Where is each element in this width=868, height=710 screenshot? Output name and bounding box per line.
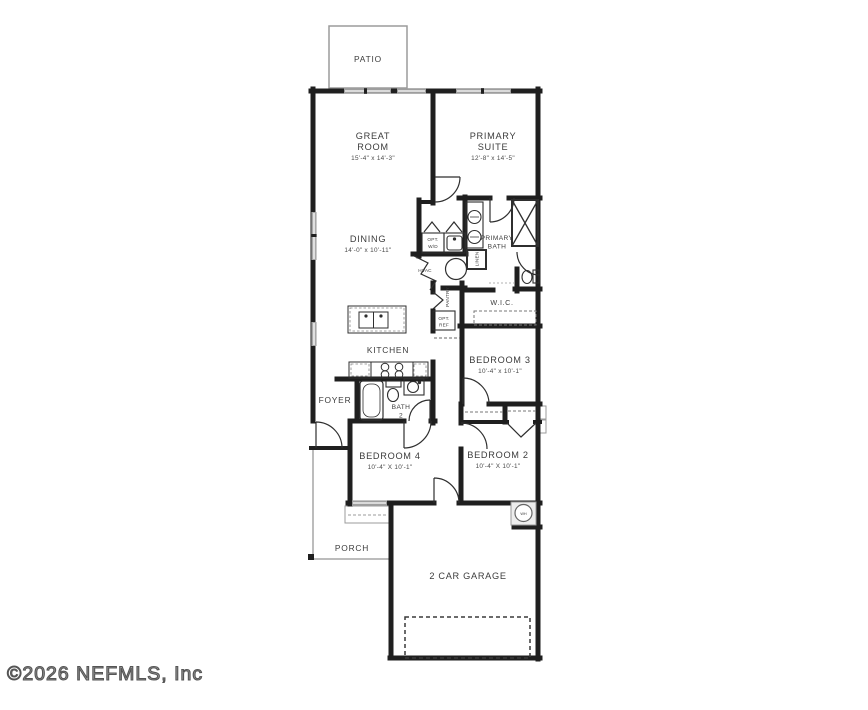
great-room-top-window [397, 88, 426, 94]
laundry-bifold-doors [424, 222, 462, 232]
dashed-lines [405, 283, 537, 658]
kitchen-label: KITCHEN [367, 345, 409, 355]
great-room-label-2: ROOM [357, 142, 388, 152]
garage-entry-door-arc [434, 478, 459, 503]
opt-ref-label-1: OPT. [438, 316, 449, 321]
garage-label: 2 CAR GARAGE [429, 571, 506, 581]
patio-slider-window [344, 88, 391, 94]
bedroom2-dims: 10'-4" X 10'-1" [476, 463, 521, 470]
shower [512, 200, 538, 246]
floor-plan-drawing: PATIO GREAT ROOM 15'-4" x 14'-3" PRIMARY… [0, 0, 868, 710]
hvac-angled-door [414, 256, 436, 290]
bedroom4-label: BEDROOM 4 [359, 451, 420, 461]
hvac-unit [446, 259, 467, 280]
primary-suite-dims: 12'-8" x 14'-5" [471, 155, 515, 162]
primary-suite-door-arc [435, 177, 460, 202]
primary-suite-label-2: SUITE [478, 142, 509, 152]
primary-suite-label-1: PRIMARY [470, 131, 517, 141]
great-room-dims: 15'-4" x 14'-3" [351, 155, 395, 162]
bedroom2-door-arc [461, 423, 487, 449]
left-wall-window-single [311, 322, 316, 346]
stove [371, 362, 413, 378]
bedroom4-door-arc [404, 421, 431, 448]
porch-corner-post [308, 554, 314, 560]
linen-label: LINEN [475, 252, 480, 267]
bedroom4-window-bay [345, 506, 390, 523]
bathtub [360, 381, 383, 420]
hvac-label: HVAC [418, 268, 432, 273]
primary-bath-label-2: BATH [488, 244, 507, 251]
patio-label: PATIO [354, 54, 382, 64]
porch-label: PORCH [335, 543, 369, 553]
floor-plan-image: PATIO GREAT ROOM 15'-4" x 14'-3" PRIMARY… [0, 0, 868, 710]
washer-dryer [422, 233, 444, 253]
bedroom4-front-window [352, 500, 387, 506]
primary-suite-top-window [456, 88, 511, 94]
opt-ref-label-2: REF [439, 323, 449, 328]
utility-sink [444, 233, 465, 253]
water-heater-label: WH [520, 512, 527, 516]
wic-closet-dashed [474, 311, 536, 325]
wic-label: W.I.C. [490, 298, 513, 307]
exterior-window-tabs [540, 406, 546, 433]
front-door-arc [316, 422, 342, 448]
bath2-toilet [386, 381, 401, 402]
copyright-watermark: ©2026 NEFMLS, Inc [7, 663, 203, 686]
garage-door-dashed [405, 617, 530, 658]
primary-bath-door-arc [490, 198, 514, 222]
bedroom3-door-arc [463, 378, 489, 404]
bedroom4-dims: 10'-4" X 10'-1" [368, 464, 413, 471]
left-wall-window-double [311, 212, 316, 260]
bath2-label-1: BATH [392, 404, 411, 411]
pantry-bifold-door [433, 292, 443, 309]
bedroom2-label: BEDROOM 2 [467, 450, 528, 460]
dining-label: DINING [350, 234, 386, 244]
bedroom3-dims: 10'-4" x 10'-1" [478, 368, 522, 375]
foyer-label: FOYER [319, 395, 352, 405]
pantry-label: PANTRY [445, 286, 450, 306]
great-room-label-1: GREAT [356, 131, 390, 141]
laundry-label-1: OPT. [427, 237, 438, 242]
bath2-label-2: 2 [399, 413, 403, 420]
laundry-label-2: W/D [428, 244, 438, 249]
primary-bath-label-1: PRIMARY [481, 235, 514, 242]
dining-dims: 14'-0" x 10'-11" [344, 247, 391, 254]
closet-bifold-door [507, 423, 536, 437]
bedroom3-label: BEDROOM 3 [469, 355, 530, 365]
bath2-door-arc [409, 400, 430, 421]
kitchen-island [348, 306, 406, 333]
